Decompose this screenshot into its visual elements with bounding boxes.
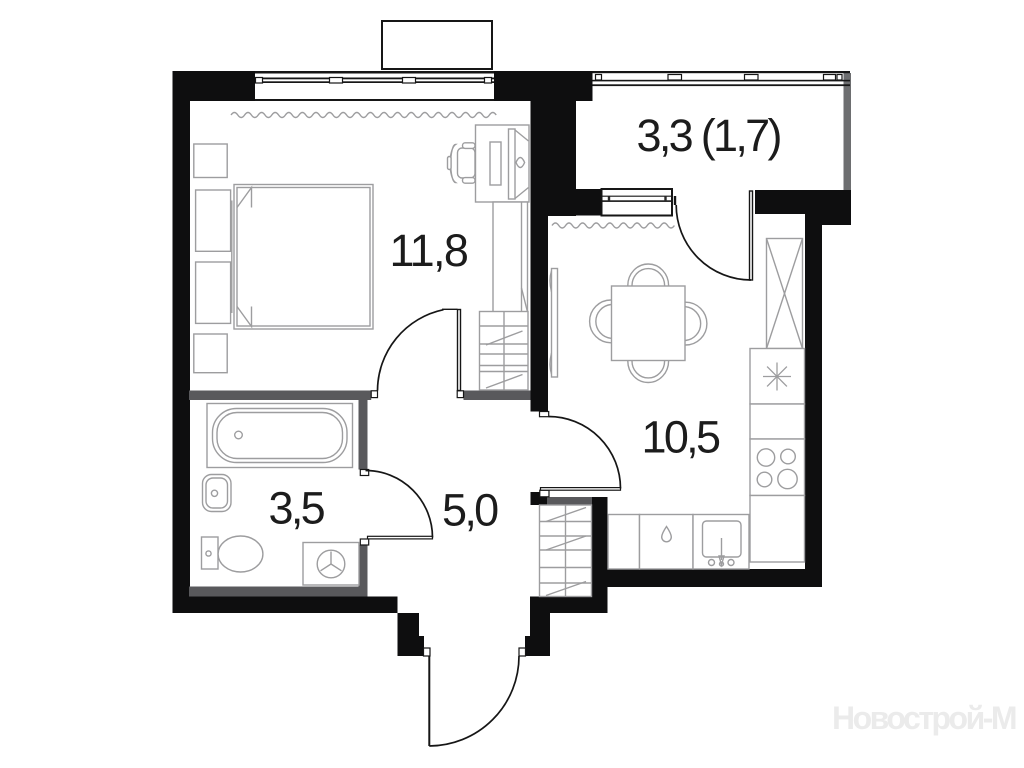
svg-text:10,5: 10,5: [642, 412, 720, 463]
svg-text:3,5: 3,5: [269, 483, 325, 534]
svg-text:11,8: 11,8: [390, 225, 468, 276]
svg-text:Новострой-М: Новострой-М: [832, 700, 1016, 736]
svg-text:3,3 (1,7): 3,3 (1,7): [637, 110, 781, 161]
svg-text:5,0: 5,0: [442, 485, 498, 536]
